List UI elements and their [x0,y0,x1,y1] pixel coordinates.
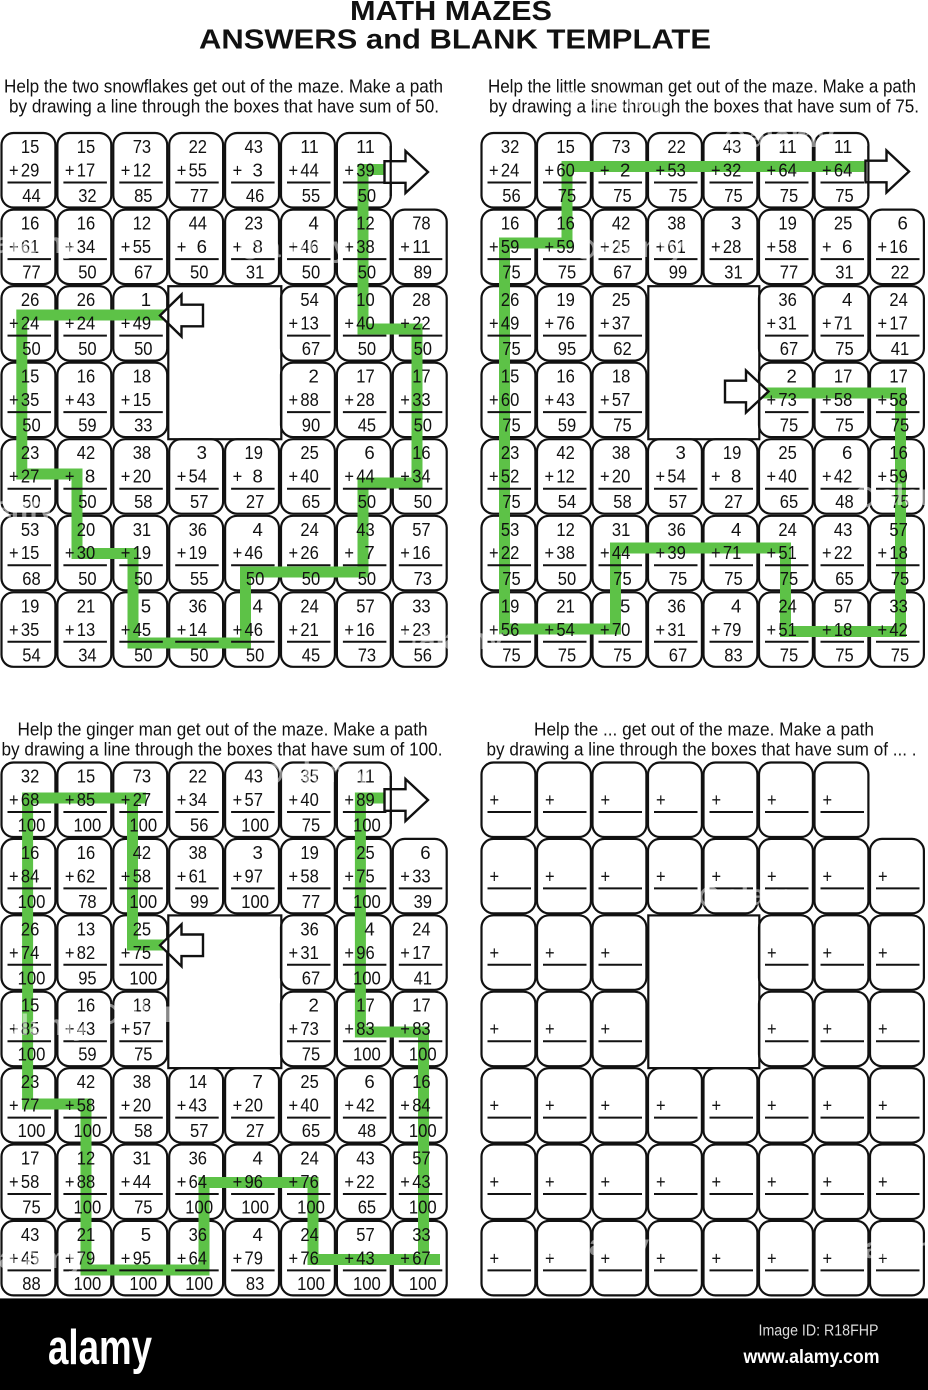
svg-text:67: 67 [613,262,631,283]
svg-text:3: 3 [197,442,207,463]
svg-text:65: 65 [835,568,853,589]
svg-text:85: 85 [134,185,152,206]
svg-text:75: 75 [780,644,798,665]
svg-text:13: 13 [300,313,318,334]
svg-text:100: 100 [185,1273,213,1294]
svg-text:5: 5 [620,595,630,616]
svg-text:+: + [656,1171,666,1192]
svg-text:50: 50 [78,338,96,359]
svg-text:+: + [878,313,888,334]
svg-text:40: 40 [300,1095,318,1116]
svg-text:43: 43 [356,1148,374,1169]
svg-text:17: 17 [889,313,907,334]
svg-text:59: 59 [556,236,574,257]
svg-text:+: + [177,1247,187,1268]
svg-text:33: 33 [412,865,430,886]
svg-text:36: 36 [667,595,685,616]
svg-text:50: 50 [78,568,96,589]
svg-text:38: 38 [556,542,574,563]
svg-text:alamy: alamy [264,231,349,264]
svg-text:75: 75 [835,644,853,665]
svg-text:+: + [767,466,777,487]
svg-text:15: 15 [556,136,574,157]
svg-text:+: + [712,865,722,886]
svg-text:75: 75 [558,185,576,206]
svg-text:67: 67 [669,644,687,665]
svg-text:76: 76 [300,1171,318,1192]
svg-text:+: + [9,789,19,810]
svg-text:+: + [9,389,19,410]
svg-text:100: 100 [353,891,381,912]
svg-text:16: 16 [556,213,574,234]
svg-text:+: + [289,1247,299,1268]
svg-text:31: 31 [778,313,796,334]
svg-text:55: 55 [302,185,320,206]
svg-text:26: 26 [501,289,519,310]
svg-text:alamy: alamy [864,1232,928,1265]
svg-text:18: 18 [889,542,907,563]
svg-text:57: 57 [190,1120,208,1141]
svg-text:24: 24 [501,160,519,181]
svg-text:+: + [121,466,131,487]
svg-text:+: + [289,1171,299,1192]
svg-text:100: 100 [241,815,269,836]
svg-text:31: 31 [300,942,318,963]
svg-text:33: 33 [412,389,430,410]
svg-text:20: 20 [245,1095,263,1116]
svg-text:31: 31 [667,619,685,640]
svg-text:36: 36 [778,289,796,310]
svg-text:58: 58 [613,491,631,512]
svg-text:6: 6 [897,213,907,234]
svg-text:6: 6 [364,1071,374,1092]
svg-text:+: + [822,236,832,257]
svg-text:25: 25 [300,1071,318,1092]
svg-text:95: 95 [133,1247,151,1268]
svg-text:+: + [600,389,610,410]
svg-text:57: 57 [669,491,687,512]
svg-text:16: 16 [889,236,907,257]
svg-text:+: + [545,1171,555,1192]
svg-text:27: 27 [724,491,742,512]
svg-text:16: 16 [501,213,519,234]
svg-text:15: 15 [21,366,39,387]
svg-text:+: + [767,313,777,334]
svg-text:58: 58 [77,1095,95,1116]
svg-text:+: + [656,789,666,810]
svg-text:75: 75 [835,415,853,436]
svg-text:+: + [490,1018,500,1039]
svg-text:+: + [121,236,131,257]
svg-text:+: + [177,160,187,181]
svg-text:3: 3 [253,842,263,863]
svg-text:75: 75 [502,568,520,589]
svg-text:+: + [9,542,19,563]
svg-text:22: 22 [412,313,430,334]
svg-text:11: 11 [834,136,852,157]
svg-text:+: + [289,619,299,640]
svg-text:+: + [344,313,354,334]
svg-text:33: 33 [412,1224,430,1245]
svg-text:75: 75 [724,185,742,206]
svg-text:75: 75 [780,415,798,436]
svg-text:15: 15 [21,542,39,563]
svg-text:71: 71 [723,542,741,563]
svg-text:25: 25 [834,213,852,234]
svg-text:100: 100 [409,1197,437,1218]
svg-text:83: 83 [412,1018,430,1039]
svg-text:74: 74 [21,942,39,963]
svg-text:90: 90 [302,415,320,436]
svg-text:22: 22 [189,136,207,157]
svg-text:100: 100 [129,967,157,988]
svg-text:25: 25 [356,842,374,863]
svg-text:75: 75 [613,568,631,589]
svg-text:4: 4 [253,1224,263,1245]
svg-text:21: 21 [77,595,95,616]
svg-text:59: 59 [558,415,576,436]
svg-text:+: + [289,466,299,487]
svg-text:alamy: alamy [749,121,834,154]
svg-text:50: 50 [190,262,208,283]
svg-text:89: 89 [414,262,432,283]
svg-text:50: 50 [358,491,376,512]
svg-text:43: 43 [189,1095,207,1116]
svg-text:+: + [344,466,354,487]
svg-text:17: 17 [834,366,852,387]
svg-text:44: 44 [356,466,374,487]
svg-text:17: 17 [889,366,907,387]
svg-text:by drawing a line through the: by drawing a line through the boxes that… [2,739,443,760]
svg-text:76: 76 [300,1247,318,1268]
svg-text:16: 16 [21,842,39,863]
svg-text:40: 40 [300,466,318,487]
svg-text:75: 75 [891,644,909,665]
svg-text:13: 13 [77,918,95,939]
svg-text:19: 19 [189,542,207,563]
svg-text:44: 44 [189,213,207,234]
svg-text:4: 4 [731,519,741,540]
svg-text:16: 16 [889,442,907,463]
svg-text:50: 50 [414,338,432,359]
svg-text:6: 6 [842,442,852,463]
svg-text:18: 18 [133,366,151,387]
svg-text:+: + [65,313,75,334]
svg-text:46: 46 [246,185,264,206]
svg-text:Help the ... get out of the ma: Help the ... get out of the maze. Make a… [534,719,874,740]
svg-text:75: 75 [669,185,687,206]
svg-text:17: 17 [21,1148,39,1169]
svg-text:100: 100 [353,815,381,836]
svg-text:+: + [711,160,721,181]
svg-text:58: 58 [134,491,152,512]
svg-text:84: 84 [21,865,39,886]
svg-text:+: + [545,789,555,810]
svg-text:23: 23 [245,213,263,234]
svg-text:83: 83 [724,644,742,665]
svg-text:67: 67 [780,338,798,359]
svg-text:27: 27 [246,1120,264,1141]
svg-text:+: + [400,236,410,257]
svg-text:42: 42 [133,842,151,863]
svg-text:50: 50 [358,262,376,283]
svg-text:24: 24 [778,519,796,540]
svg-text:22: 22 [189,766,207,787]
svg-text:7: 7 [364,542,374,563]
svg-text:75: 75 [669,568,687,589]
svg-text:+: + [878,1095,888,1116]
svg-text:+: + [233,466,243,487]
svg-text:31: 31 [133,1148,151,1169]
svg-text:+: + [177,542,187,563]
svg-text:2: 2 [786,366,796,387]
svg-text:75: 75 [502,338,520,359]
svg-text:18: 18 [834,619,852,640]
svg-text:77: 77 [22,262,40,283]
svg-text:+: + [177,1171,187,1192]
svg-text:32: 32 [21,766,39,787]
svg-text:73: 73 [300,1018,318,1039]
svg-text:95: 95 [558,338,576,359]
svg-text:50: 50 [358,568,376,589]
svg-text:24: 24 [21,313,39,334]
svg-text:24: 24 [77,313,95,334]
svg-text:75: 75 [613,415,631,436]
svg-text:+: + [489,160,499,181]
svg-text:75: 75 [302,815,320,836]
svg-text:+: + [822,542,832,563]
svg-text:8: 8 [85,466,95,487]
svg-text:+: + [9,160,19,181]
svg-text:24: 24 [889,289,907,310]
svg-text:+: + [601,1018,611,1039]
svg-text:75: 75 [613,185,631,206]
svg-text:+: + [65,865,75,886]
svg-text:+: + [490,1171,500,1192]
svg-text:+: + [656,542,666,563]
svg-text:+: + [712,1171,722,1192]
svg-text:57: 57 [834,595,852,616]
svg-text:+: + [289,865,299,886]
svg-text:79: 79 [723,619,741,640]
svg-text:38: 38 [133,442,151,463]
svg-text:57: 57 [612,389,630,410]
svg-text:58: 58 [133,865,151,886]
svg-text:+: + [823,942,833,963]
svg-text:+: + [878,1018,888,1039]
svg-text:+: + [878,389,888,410]
svg-text:by drawing a line through the: by drawing a line through the boxes that… [9,96,439,117]
svg-text:43: 43 [356,519,374,540]
svg-text:100: 100 [74,815,102,836]
svg-text:73: 73 [778,389,796,410]
svg-text:100: 100 [74,1120,102,1141]
svg-text:56: 56 [502,185,520,206]
svg-text:75: 75 [502,491,520,512]
svg-text:+: + [767,619,777,640]
svg-text:+: + [233,542,243,563]
svg-text:+: + [823,1247,833,1268]
svg-text:4: 4 [253,595,263,616]
svg-text:+: + [344,1095,354,1116]
svg-text:38: 38 [612,442,630,463]
svg-text:75: 75 [133,942,151,963]
svg-text:75: 75 [134,1197,152,1218]
svg-text:20: 20 [612,466,630,487]
svg-text:10: 10 [356,289,374,310]
svg-text:75: 75 [780,568,798,589]
svg-text:46: 46 [245,619,263,640]
svg-text:40: 40 [356,313,374,334]
svg-text:+: + [289,313,299,334]
svg-text:+: + [545,1018,555,1039]
svg-text:78: 78 [78,891,96,912]
svg-text:www.alamy.com: www.alamy.com [743,1346,880,1368]
svg-text:+: + [289,942,299,963]
svg-text:49: 49 [133,313,151,334]
svg-text:4: 4 [842,289,852,310]
svg-text:6: 6 [197,236,207,257]
svg-text:62: 62 [613,338,631,359]
svg-text:100: 100 [297,1273,325,1294]
svg-text:46: 46 [245,542,263,563]
svg-text:17: 17 [356,995,374,1016]
svg-text:+: + [9,1171,19,1192]
svg-text:+: + [600,619,610,640]
svg-text:3: 3 [253,160,263,181]
svg-text:+: + [344,942,354,963]
svg-text:alamy: alamy [724,879,809,912]
svg-text:15: 15 [501,366,519,387]
svg-text:57: 57 [412,1148,430,1169]
svg-text:88: 88 [77,1171,95,1192]
svg-text:89: 89 [356,789,374,810]
svg-text:+: + [600,160,610,181]
svg-text:39: 39 [356,160,374,181]
svg-text:43: 43 [556,389,574,410]
svg-text:24: 24 [300,519,318,540]
svg-text:6: 6 [842,236,852,257]
svg-text:96: 96 [245,1171,263,1192]
svg-text:50: 50 [134,568,152,589]
svg-text:+: + [656,466,666,487]
svg-text:+: + [344,1247,354,1268]
svg-text:+: + [489,236,499,257]
svg-text:16: 16 [356,619,374,640]
svg-text:+: + [823,1095,833,1116]
svg-text:53: 53 [501,519,519,540]
svg-text:96: 96 [356,942,374,963]
svg-text:19: 19 [245,442,263,463]
svg-text:12: 12 [556,519,574,540]
svg-text:15: 15 [77,766,95,787]
svg-text:35: 35 [21,389,39,410]
svg-text:73: 73 [358,644,376,665]
svg-text:100: 100 [353,967,381,988]
svg-text:+: + [711,619,721,640]
svg-text:+: + [656,619,666,640]
svg-text:+: + [545,160,555,181]
svg-text:+: + [656,1095,666,1116]
svg-text:+: + [711,466,721,487]
svg-text:26: 26 [77,289,95,310]
svg-text:+: + [121,389,131,410]
svg-text:Help the ginger man get out of: Help the ginger man get out of the maze.… [18,719,428,740]
svg-text:64: 64 [189,1171,207,1192]
svg-text:+: + [344,619,354,640]
svg-text:+: + [400,389,410,410]
svg-text:65: 65 [780,491,798,512]
svg-text:73: 73 [414,568,432,589]
svg-text:17: 17 [412,942,430,963]
svg-text:25: 25 [778,442,796,463]
svg-text:16: 16 [77,842,95,863]
svg-text:3: 3 [731,213,741,234]
svg-text:36: 36 [667,519,685,540]
svg-text:33: 33 [412,595,430,616]
svg-text:16: 16 [77,213,95,234]
svg-text:MATH MAZES: MATH MAZES [350,0,552,26]
svg-text:28: 28 [356,389,374,410]
svg-text:42: 42 [77,1071,95,1092]
svg-text:+: + [289,1095,299,1116]
svg-text:45: 45 [358,415,376,436]
svg-text:64: 64 [834,160,852,181]
svg-text:54: 54 [556,619,574,640]
svg-text:19: 19 [300,842,318,863]
svg-text:+: + [601,1095,611,1116]
svg-text:34: 34 [78,644,96,665]
svg-text:+: + [121,313,131,334]
svg-text:49: 49 [501,313,519,334]
svg-text:57: 57 [356,1224,374,1245]
svg-text:+: + [400,1247,410,1268]
svg-text:8: 8 [253,466,263,487]
svg-text:39: 39 [414,891,432,912]
svg-text:51: 51 [778,619,796,640]
svg-text:84: 84 [412,1095,430,1116]
svg-text:7: 7 [253,1071,263,1092]
svg-text:19: 19 [501,595,519,616]
svg-text:50: 50 [358,338,376,359]
svg-text:+: + [400,542,410,563]
svg-text:42: 42 [77,442,95,463]
svg-text:100: 100 [74,1197,102,1218]
svg-text:50: 50 [358,185,376,206]
svg-text:59: 59 [78,415,96,436]
svg-text:100: 100 [18,1120,46,1141]
svg-text:+: + [177,466,187,487]
svg-text:+: + [878,236,888,257]
svg-text:11: 11 [356,136,374,157]
svg-text:+: + [489,542,499,563]
svg-text:alamy: alamy [4,1009,89,1042]
svg-text:50: 50 [558,568,576,589]
svg-text:+: + [233,619,243,640]
svg-text:13: 13 [77,619,95,640]
svg-text:+: + [344,542,354,563]
svg-text:41: 41 [414,967,432,988]
svg-text:+: + [9,466,19,487]
svg-text:88: 88 [22,1273,40,1294]
svg-text:50: 50 [246,568,264,589]
svg-text:100: 100 [241,891,269,912]
svg-text:27: 27 [133,789,151,810]
svg-text:+: + [121,1095,131,1116]
svg-text:+: + [121,789,131,810]
svg-text:alamy: alamy [48,1321,152,1375]
svg-text:+: + [121,542,131,563]
